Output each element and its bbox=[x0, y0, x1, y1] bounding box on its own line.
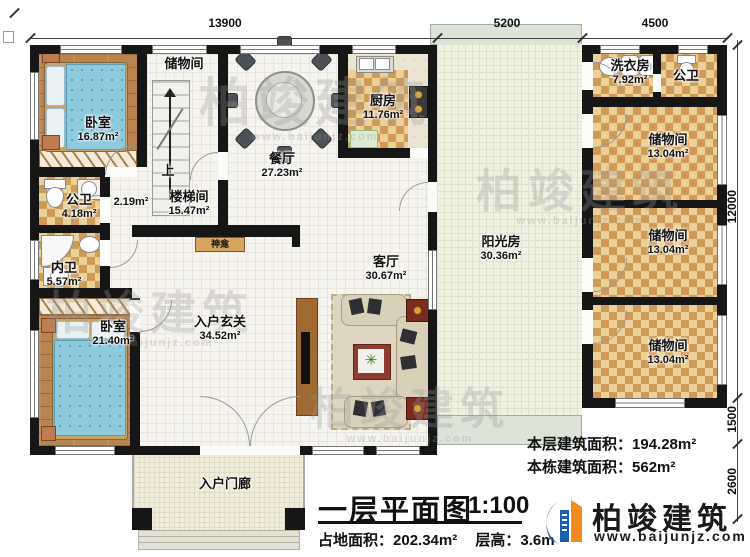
axis-marker bbox=[3, 31, 14, 43]
shrine-label: 神龛 bbox=[211, 239, 229, 249]
wardrobe-bottom bbox=[39, 298, 132, 315]
dim-top-3: 4500 bbox=[610, 16, 700, 30]
kitchen-mat bbox=[350, 130, 378, 148]
window bbox=[600, 45, 640, 54]
sunroom-floor bbox=[437, 44, 582, 420]
porch-column bbox=[285, 508, 305, 530]
stairs-up-label: 上 bbox=[148, 164, 188, 179]
wall-storage-divider-2 bbox=[593, 297, 717, 305]
window bbox=[55, 446, 115, 455]
window bbox=[312, 446, 364, 455]
wall-mid-horizontal bbox=[132, 225, 300, 237]
coffee-table-plant: ✳ bbox=[358, 349, 384, 373]
wall-bedroom-top-bottom bbox=[39, 167, 105, 177]
sofa-cushion bbox=[353, 400, 368, 417]
wall-bath-divider bbox=[39, 225, 100, 233]
sofa-cushion bbox=[367, 298, 382, 315]
dim-top-2: 5200 bbox=[462, 16, 552, 30]
window bbox=[152, 45, 207, 54]
room-label-bath-left: 公卫 4.18m² bbox=[29, 193, 129, 220]
speaker bbox=[406, 397, 429, 420]
door-gap bbox=[218, 152, 228, 180]
room-label-sunroom: 阳光房 30.36m² bbox=[451, 235, 551, 262]
floor-area-label: 本层建筑面积： bbox=[527, 436, 632, 453]
window bbox=[60, 45, 122, 54]
pillow bbox=[46, 66, 65, 106]
window bbox=[30, 72, 39, 140]
window bbox=[615, 398, 685, 408]
dim-tick bbox=[9, 8, 20, 19]
sofa-cushion bbox=[400, 355, 417, 370]
window bbox=[240, 45, 320, 54]
floor-area-value: 194.28m² bbox=[632, 436, 696, 453]
wall-bedroom-bottom-top bbox=[39, 288, 132, 298]
room-label-kitchen: 厨房 11.76m² bbox=[333, 94, 433, 121]
window bbox=[678, 45, 708, 54]
tv bbox=[301, 332, 310, 384]
sofa-cushion bbox=[371, 400, 386, 417]
wall-storage-divider-1 bbox=[593, 200, 717, 208]
porch-column bbox=[132, 508, 152, 530]
building-area-line: 本栋建筑面积：562m² bbox=[527, 456, 675, 477]
room-label-storage1: 储物间 13.04m² bbox=[618, 133, 718, 160]
title-underline bbox=[318, 521, 522, 524]
door-gap bbox=[582, 310, 593, 344]
bed-bottom-blanket bbox=[54, 340, 126, 436]
room-label-bedroom-top: 卧室 16.87m² bbox=[48, 116, 148, 143]
dim-right-3: 2600 bbox=[725, 468, 739, 495]
nightstand bbox=[41, 426, 56, 441]
shrine-niche: 神龛 bbox=[195, 237, 245, 252]
brand-website: www.baijunjz.com bbox=[594, 528, 747, 544]
room-label-living: 客厅 30.67m² bbox=[336, 255, 436, 282]
dimension-line-right bbox=[737, 40, 738, 522]
room-label-foyer: 入户玄关 34.52m² bbox=[170, 315, 270, 342]
dim-top-1: 13900 bbox=[180, 16, 270, 30]
sink bbox=[79, 236, 100, 253]
stair-direction-line bbox=[169, 95, 171, 200]
room-label-storage2: 储物间 13.04m² bbox=[618, 229, 718, 256]
plan-scale: 1:100 bbox=[468, 492, 529, 520]
dimension-line-top bbox=[30, 38, 727, 39]
window bbox=[376, 446, 420, 455]
floor-area-line: 本层建筑面积：194.28m² bbox=[527, 433, 696, 454]
wall-laundry-bottom bbox=[582, 97, 727, 107]
height-label: 层高： bbox=[475, 532, 520, 549]
footprint-line: 占地面积：202.34m² 层高：3.6m bbox=[318, 529, 555, 550]
door-gap bbox=[582, 114, 593, 148]
stair-arrow-icon bbox=[164, 88, 176, 97]
window bbox=[352, 45, 396, 54]
dining-table-center bbox=[266, 82, 302, 118]
speaker bbox=[406, 299, 429, 322]
door-gap bbox=[428, 182, 437, 212]
door-gap bbox=[410, 148, 428, 158]
building-area-value: 562m² bbox=[632, 459, 675, 476]
porch-step bbox=[138, 542, 300, 550]
room-label-storage-stair: 储物间 bbox=[134, 57, 234, 72]
window bbox=[30, 330, 39, 418]
building-area-label: 本栋建筑面积： bbox=[527, 459, 632, 476]
dim-right-1: 12000 bbox=[725, 190, 739, 223]
room-label-bath-right: 公卫 bbox=[646, 69, 726, 84]
room-label-storage3: 储物间 13.04m² bbox=[618, 339, 718, 366]
footprint-value: 202.34m² bbox=[393, 532, 457, 549]
room-label-dining: 餐厅 27.23m² bbox=[232, 152, 332, 179]
entry-door-gap bbox=[200, 446, 300, 455]
wall-stub bbox=[292, 225, 300, 247]
kitchen-sink-bowl bbox=[359, 58, 374, 70]
floor-plan-canvas: ✳ bbox=[0, 0, 750, 557]
kitchen-sink-bowl bbox=[375, 58, 390, 70]
window bbox=[717, 225, 727, 285]
room-label-bath-private: 内卫 5.57m² bbox=[14, 261, 114, 288]
footprint-label: 占地面积： bbox=[318, 532, 393, 549]
nightstand bbox=[41, 318, 56, 333]
wall-kitchen-bottom bbox=[338, 148, 410, 158]
sofa-cushion bbox=[349, 298, 365, 315]
door-gap bbox=[582, 258, 593, 292]
dim-right-2: 1500 bbox=[725, 406, 739, 433]
window bbox=[717, 115, 727, 185]
room-label-porch: 入户门廊 bbox=[165, 477, 285, 492]
room-label-bedroom-bottom: 卧室 21.40m² bbox=[63, 320, 163, 347]
brand-logo-icon bbox=[545, 490, 585, 550]
window bbox=[717, 315, 727, 385]
